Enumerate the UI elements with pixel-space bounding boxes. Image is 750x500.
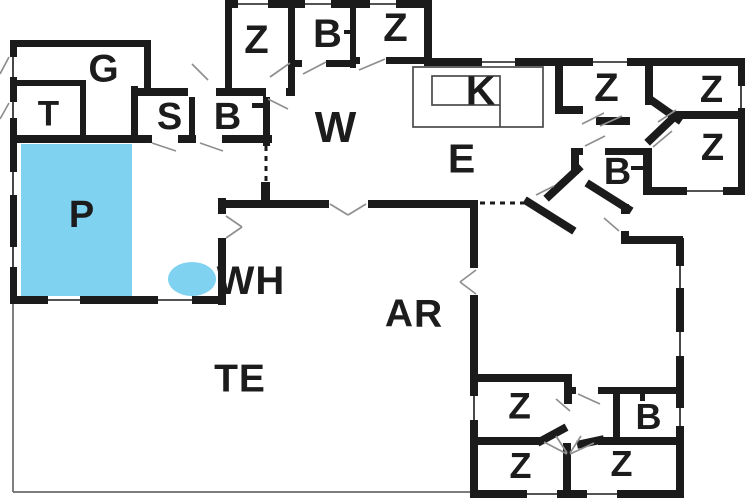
room-label-bath-west: B — [214, 98, 242, 136]
room-label-pool: P — [69, 196, 95, 234]
sliding-doors — [266, 146, 528, 203]
room-label-bedroom-top-2: Z — [383, 8, 408, 48]
room-label-whirlpool: WH — [217, 261, 286, 301]
room-label-bath-south: B — [636, 399, 663, 435]
room-label-bedroom-ne-1: Z — [594, 68, 619, 108]
room-label-bedroom-top-1: Z — [244, 20, 269, 60]
room-label-bath-east: B — [604, 153, 632, 191]
room-label-bedroom-ne-2: Z — [700, 71, 724, 109]
room-label-living-room: W — [315, 106, 358, 150]
room-label-toilet: T — [38, 97, 60, 132]
floor-plan: G T S B Z B Z W K E Z Z Z B P WH AR TE Z… — [0, 0, 750, 500]
room-label-bedroom-south-3: Z — [611, 446, 634, 482]
room-label-kitchen: K — [466, 71, 497, 112]
room-label-bath-top: B — [313, 14, 343, 54]
room-label-bedroom-south-1: Z — [508, 388, 532, 425]
whirlpool-tub — [168, 262, 216, 296]
room-label-bedroom-east: Z — [701, 129, 725, 167]
room-label-sauna: S — [157, 98, 183, 136]
room-label-annex-area: AR — [385, 295, 443, 334]
room-label-dining: E — [448, 139, 476, 180]
room-label-garage: G — [88, 50, 119, 89]
room-label-terrace: TE — [214, 360, 266, 399]
room-label-bedroom-south-2: Z — [510, 448, 533, 484]
swimming-pool — [21, 144, 216, 296]
